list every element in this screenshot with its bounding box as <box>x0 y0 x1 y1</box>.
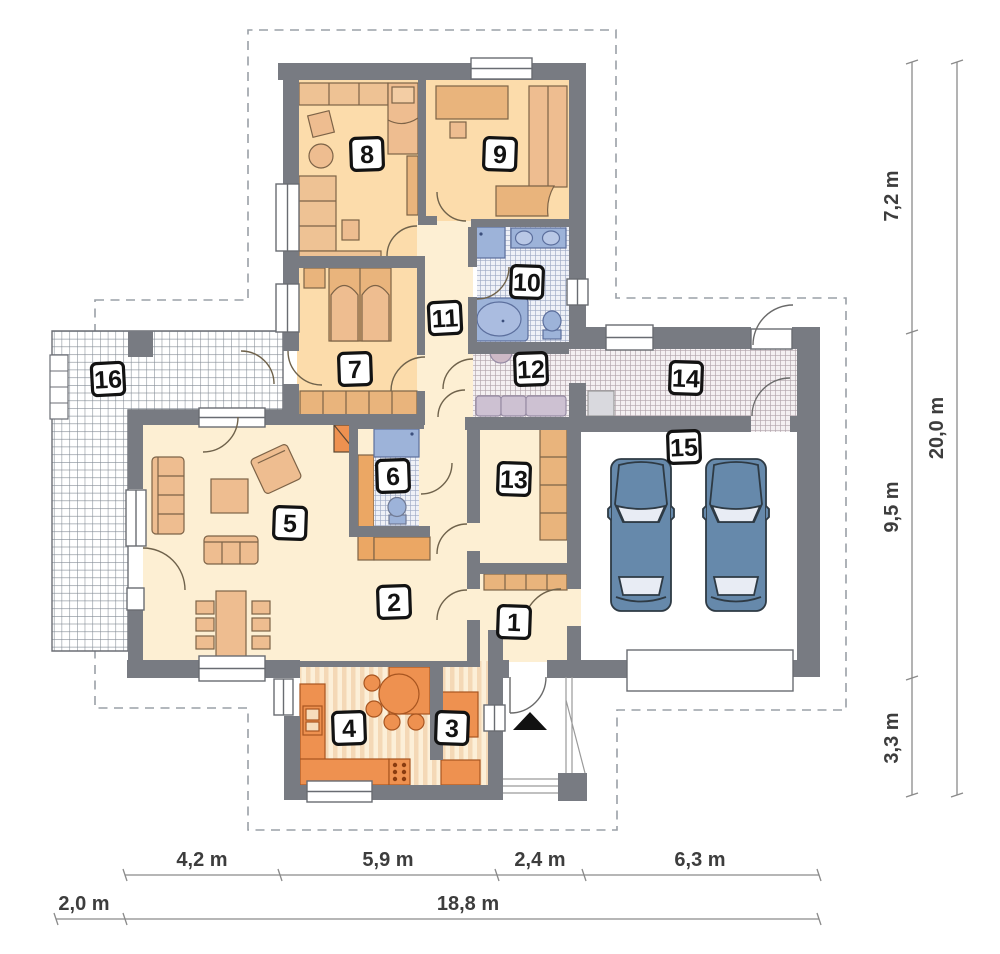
svg-text:5: 5 <box>283 510 298 538</box>
svg-text:18,8 m: 18,8 m <box>437 893 499 915</box>
svg-text:2: 2 <box>387 589 402 617</box>
svg-text:6: 6 <box>386 463 401 491</box>
svg-text:20,0 m: 20,0 m <box>926 397 948 459</box>
svg-text:9: 9 <box>493 141 508 169</box>
svg-text:10: 10 <box>513 269 542 298</box>
svg-text:16: 16 <box>93 365 122 394</box>
svg-text:5,9 m: 5,9 m <box>362 849 413 871</box>
svg-text:13: 13 <box>500 466 529 495</box>
svg-text:4,2 m: 4,2 m <box>176 849 227 871</box>
svg-text:7: 7 <box>348 356 363 384</box>
svg-text:1: 1 <box>507 609 522 637</box>
svg-text:3: 3 <box>445 715 460 743</box>
svg-text:8: 8 <box>360 141 375 169</box>
svg-text:4: 4 <box>342 715 357 743</box>
svg-text:14: 14 <box>672 365 701 394</box>
svg-text:3,3 m: 3,3 m <box>881 712 903 763</box>
svg-text:9,5 m: 9,5 m <box>881 481 903 532</box>
svg-text:15: 15 <box>670 434 699 463</box>
svg-text:2,0 m: 2,0 m <box>58 893 109 915</box>
svg-text:6,3 m: 6,3 m <box>674 849 725 871</box>
svg-text:12: 12 <box>517 356 546 385</box>
svg-text:7,2 m: 7,2 m <box>881 170 903 221</box>
svg-text:11: 11 <box>431 304 459 333</box>
svg-text:2,4 m: 2,4 m <box>514 849 565 871</box>
